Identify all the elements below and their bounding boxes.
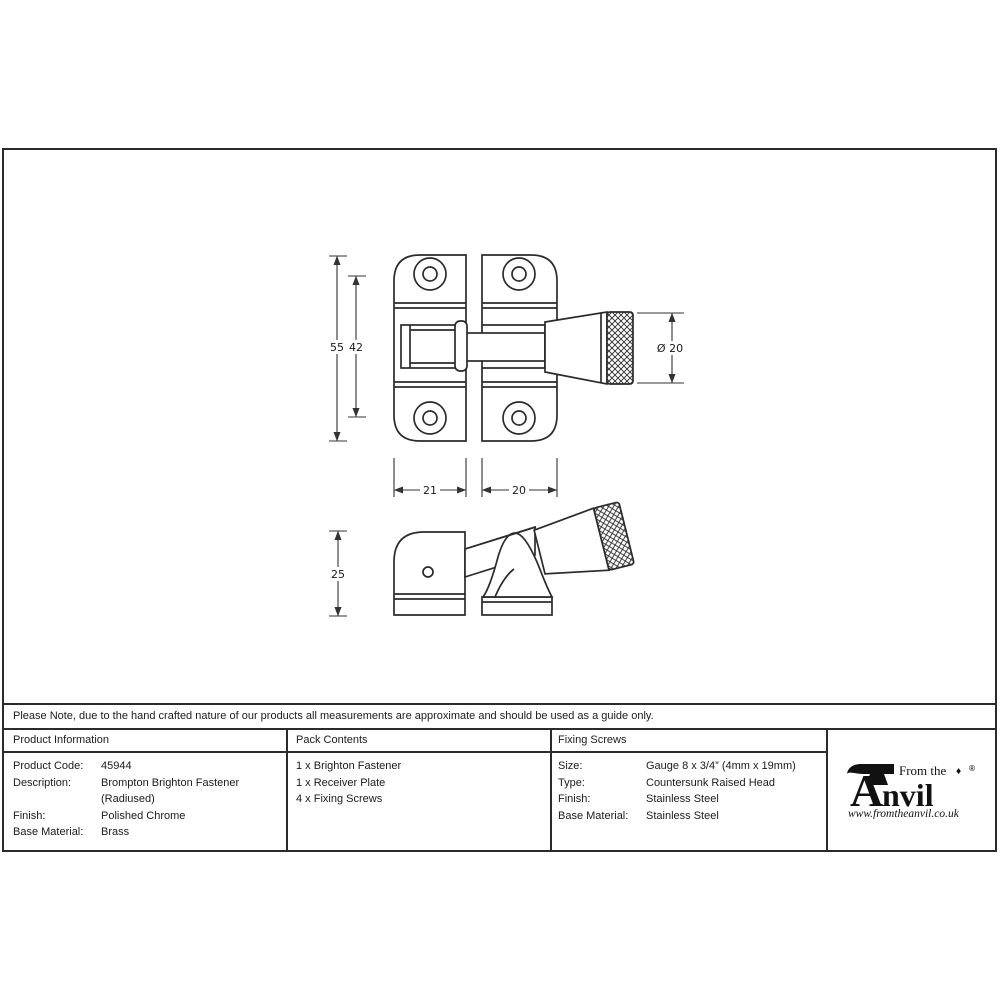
pack-contents-header: Pack Contents bbox=[286, 730, 550, 753]
spec-table: Product Information Pack Contents Fixing… bbox=[4, 730, 995, 850]
fixing-screws-cell: Size: Gauge 8 x 3/4” (4mm x 19mm) Type: … bbox=[550, 753, 826, 850]
screw-hole bbox=[512, 267, 526, 281]
screw-finish-label: Finish: bbox=[558, 791, 646, 808]
spec-sheet: 55 42 21 20 Ø 20 25 Please Note, due to … bbox=[2, 148, 997, 852]
screw-base-material-row: Base Material: Stainless Steel bbox=[558, 808, 826, 825]
description-row: Description: Brompton Brighton Fastener … bbox=[13, 775, 286, 808]
product-information-cell: Product Code: 45944 Description: Brompto… bbox=[4, 753, 286, 850]
knob-cone bbox=[545, 312, 607, 384]
receiver-plate bbox=[482, 597, 552, 615]
screw-finish-value: Stainless Steel bbox=[646, 791, 719, 808]
screw-type-label: Type: bbox=[558, 775, 646, 792]
front-view bbox=[394, 255, 633, 441]
fixing-screws-header: Fixing Screws bbox=[550, 730, 826, 753]
screw-type-value: Countersunk Raised Head bbox=[646, 775, 775, 792]
dim-21-label: 21 bbox=[423, 484, 437, 497]
product-code-row: Product Code: 45944 bbox=[13, 758, 286, 775]
dim-ext-lines bbox=[394, 458, 557, 497]
screw-hole bbox=[423, 267, 437, 281]
dim-20-label: 20 bbox=[512, 484, 526, 497]
anvil-logo: From the ♦ ® A nvil www.fromtheanvil.co.… bbox=[846, 761, 978, 819]
screw-hole bbox=[423, 411, 437, 425]
page-root: { "colors": { "ink": "#2b2b2b" }, "drawi… bbox=[0, 0, 1000, 1000]
base-material-label: Base Material: bbox=[13, 824, 101, 841]
screw-size-label: Size: bbox=[558, 758, 646, 775]
base-material-row: Base Material: Brass bbox=[13, 824, 286, 841]
note-row: Please Note, due to the hand crafted nat… bbox=[4, 703, 995, 730]
screw-finish-row: Finish: Stainless Steel bbox=[558, 791, 826, 808]
screw-size-row: Size: Gauge 8 x 3/4” (4mm x 19mm) bbox=[558, 758, 826, 775]
screw-size-value: Gauge 8 x 3/4” (4mm x 19mm) bbox=[646, 758, 796, 775]
finish-label: Finish: bbox=[13, 808, 101, 825]
side-knob bbox=[532, 502, 634, 586]
screw-hole bbox=[512, 411, 526, 425]
product-information-header: Product Information bbox=[4, 730, 286, 753]
brand-website: www.fromtheanvil.co.uk bbox=[848, 808, 960, 819]
note-text: Please Note, due to the hand crafted nat… bbox=[13, 710, 654, 722]
fixing-hole bbox=[423, 567, 433, 577]
slider-cap bbox=[455, 321, 467, 371]
brand-ornament: ♦ bbox=[955, 767, 962, 776]
dim-55-label: 55 bbox=[330, 341, 344, 354]
screw-type-row: Type: Countersunk Raised Head bbox=[558, 775, 826, 792]
brand-cell: From the ♦ ® A nvil www.fromtheanvil.co.… bbox=[826, 730, 995, 850]
description-label: Description: bbox=[13, 775, 101, 792]
finish-value: Polished Chrome bbox=[101, 808, 185, 825]
latch-shaft bbox=[462, 333, 545, 361]
screw-base-material-value: Stainless Steel bbox=[646, 808, 719, 825]
pack-contents-cell: 1 x Brighton Fastener 1 x Receiver Plate… bbox=[286, 753, 550, 850]
side-view bbox=[394, 502, 634, 615]
description-value: Brompton Brighton Fastener (Radiused) bbox=[101, 775, 253, 808]
pack-item: 1 x Receiver Plate bbox=[296, 775, 550, 792]
finish-row: Finish: Polished Chrome bbox=[13, 808, 286, 825]
screw-base-material-label: Base Material: bbox=[558, 808, 646, 825]
pack-item: 4 x Fixing Screws bbox=[296, 791, 550, 808]
dim-42-label: 42 bbox=[349, 341, 363, 354]
knurled-knob bbox=[607, 312, 633, 384]
registered-mark: ® bbox=[968, 764, 976, 773]
product-code-label: Product Code: bbox=[13, 758, 101, 775]
product-code-value: 45944 bbox=[101, 758, 132, 775]
dim-diameter-label: Ø 20 bbox=[657, 342, 683, 355]
base-material-value: Brass bbox=[101, 824, 129, 841]
brand-tagline: From the bbox=[899, 763, 947, 778]
dim-25-label: 25 bbox=[331, 568, 345, 581]
pack-item: 1 x Brighton Fastener bbox=[296, 758, 550, 775]
